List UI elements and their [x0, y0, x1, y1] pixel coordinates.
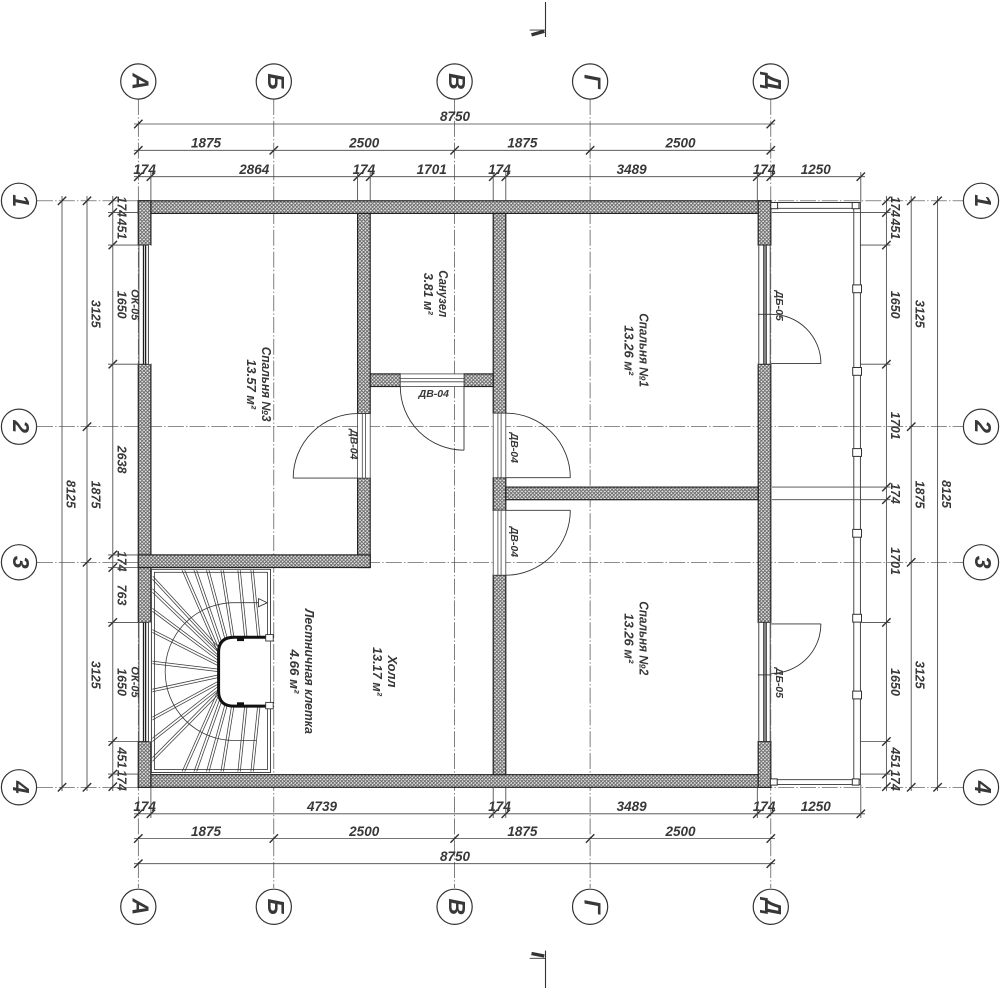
svg-text:ДБ-05: ДБ-05	[773, 290, 785, 321]
svg-text:Б: Б	[263, 73, 289, 89]
svg-text:Лестничная клетка: Лестничная клетка	[302, 608, 316, 734]
svg-text:2500: 2500	[664, 136, 696, 151]
svg-text:1650: 1650	[888, 291, 902, 319]
svg-text:3489: 3489	[617, 799, 648, 814]
svg-text:174: 174	[114, 551, 128, 572]
svg-text:А: А	[128, 897, 154, 915]
svg-text:174: 174	[488, 799, 511, 814]
svg-text:3489: 3489	[617, 162, 648, 177]
svg-text:Спальня №1: Спальня №1	[636, 313, 650, 387]
svg-text:3125: 3125	[89, 661, 103, 690]
svg-text:1875: 1875	[191, 136, 222, 151]
svg-text:451: 451	[888, 217, 902, 239]
svg-text:13.26 м²: 13.26 м²	[621, 613, 635, 664]
svg-text:8750: 8750	[440, 849, 471, 864]
svg-text:174: 174	[888, 483, 902, 504]
svg-text:ОК-05: ОК-05	[129, 666, 141, 698]
svg-text:Г: Г	[579, 900, 605, 915]
svg-text:ДВ-04: ДВ-04	[508, 526, 520, 558]
svg-text:1: 1	[970, 194, 996, 207]
svg-text:2638: 2638	[114, 445, 128, 474]
svg-text:451: 451	[114, 746, 128, 768]
svg-text:1875: 1875	[913, 481, 927, 510]
svg-text:174: 174	[133, 799, 156, 814]
svg-text:174: 174	[888, 196, 902, 217]
svg-text:8125: 8125	[64, 480, 78, 509]
svg-text:8750: 8750	[440, 109, 471, 124]
svg-text:1701: 1701	[888, 547, 902, 575]
svg-text:1650: 1650	[114, 291, 128, 319]
svg-text:Д: Д	[760, 71, 786, 90]
svg-text:1701: 1701	[417, 162, 447, 177]
svg-text:2500: 2500	[348, 136, 380, 151]
svg-text:174: 174	[133, 162, 156, 177]
svg-text:174: 174	[114, 770, 128, 791]
svg-text:13.17 м²: 13.17 м²	[370, 647, 384, 697]
svg-text:2500: 2500	[664, 824, 696, 839]
svg-text:ДВ-04: ДВ-04	[418, 388, 450, 400]
svg-text:3.81 м²: 3.81 м²	[421, 273, 435, 316]
svg-text:1875: 1875	[507, 136, 538, 151]
svg-text:2500: 2500	[348, 824, 380, 839]
svg-text:2: 2	[8, 419, 34, 433]
svg-text:ДВ-04: ДВ-04	[348, 428, 360, 460]
svg-text:В: В	[444, 898, 470, 915]
svg-text:4739: 4739	[306, 799, 338, 814]
svg-text:174: 174	[353, 162, 376, 177]
svg-text:1: 1	[8, 194, 34, 207]
svg-text:1875: 1875	[507, 824, 538, 839]
svg-text:1701: 1701	[888, 412, 902, 440]
svg-text:3125: 3125	[913, 300, 927, 329]
svg-text:Холл: Холл	[385, 654, 399, 687]
svg-text:1650: 1650	[114, 668, 128, 696]
svg-text:2: 2	[970, 419, 996, 433]
svg-text:1875: 1875	[191, 824, 222, 839]
svg-text:1875: 1875	[89, 481, 103, 510]
svg-text:174: 174	[753, 799, 776, 814]
svg-text:3125: 3125	[89, 300, 103, 329]
svg-text:1650: 1650	[888, 668, 902, 696]
svg-text:Спальня №3: Спальня №3	[259, 347, 273, 422]
svg-text:ДВ-04: ДВ-04	[508, 432, 520, 464]
svg-text:2864: 2864	[238, 162, 270, 177]
svg-text:13.57 м²: 13.57 м²	[244, 359, 258, 410]
svg-text:Спальня №2: Спальня №2	[636, 601, 650, 675]
svg-text:1250: 1250	[801, 799, 832, 814]
svg-text:174: 174	[114, 196, 128, 217]
svg-text:4: 4	[8, 780, 34, 794]
svg-text:174: 174	[753, 162, 776, 177]
svg-text:451: 451	[888, 746, 902, 768]
svg-text:Санузел: Санузел	[436, 270, 450, 317]
svg-text:8125: 8125	[939, 480, 953, 509]
svg-text:4.66 м²: 4.66 м²	[287, 648, 301, 694]
svg-text:3125: 3125	[913, 661, 927, 690]
svg-text:13.26 м²: 13.26 м²	[621, 325, 635, 376]
svg-text:174: 174	[488, 162, 511, 177]
svg-text:3: 3	[8, 556, 34, 569]
svg-text:763: 763	[114, 585, 128, 606]
svg-text:1250: 1250	[801, 162, 832, 177]
svg-text:4: 4	[970, 780, 996, 794]
svg-text:В: В	[444, 73, 470, 90]
svg-text:Г: Г	[579, 74, 605, 89]
svg-text:ОК-05: ОК-05	[129, 289, 141, 321]
svg-text:451: 451	[114, 217, 128, 239]
svg-text:Д: Д	[760, 896, 786, 915]
svg-text:ДБ-05: ДБ-05	[773, 667, 785, 698]
svg-text:Б: Б	[263, 899, 289, 915]
svg-text:174: 174	[888, 770, 902, 791]
svg-text:А: А	[128, 72, 154, 90]
svg-text:3: 3	[970, 556, 996, 569]
